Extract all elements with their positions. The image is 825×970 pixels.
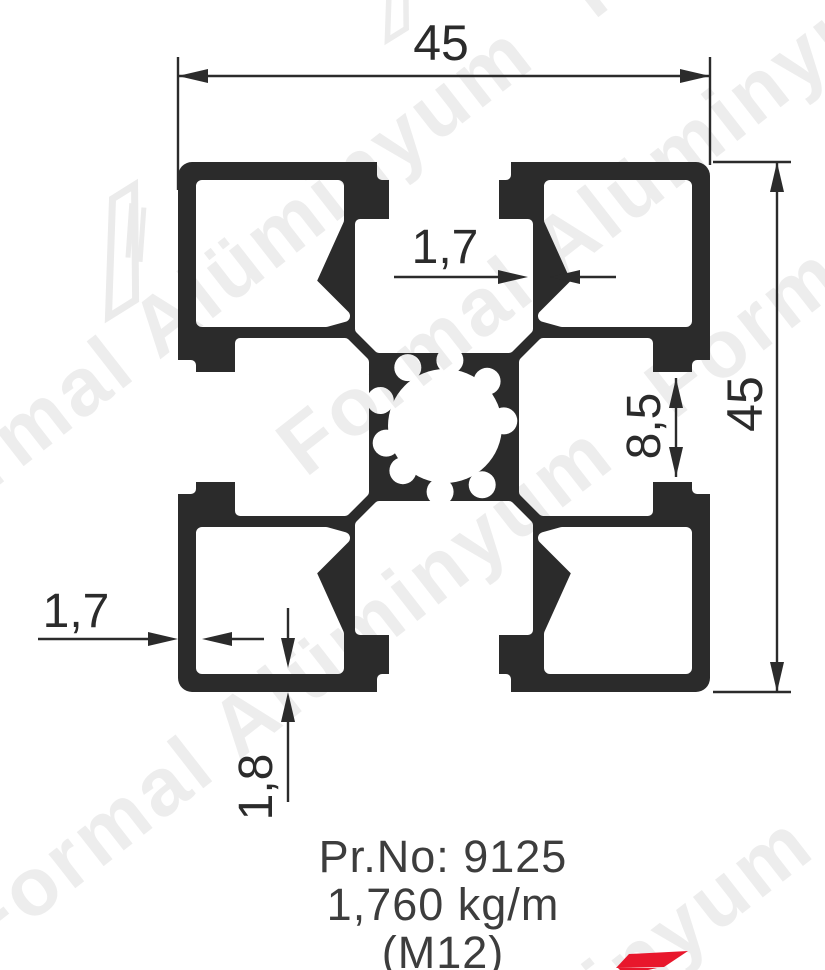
formal-logo-fragment <box>0 0 825 970</box>
formal-logo-icon <box>616 951 688 968</box>
drawing-page: Formal AlüminyumFormal Alüminyum Formal … <box>0 0 825 970</box>
